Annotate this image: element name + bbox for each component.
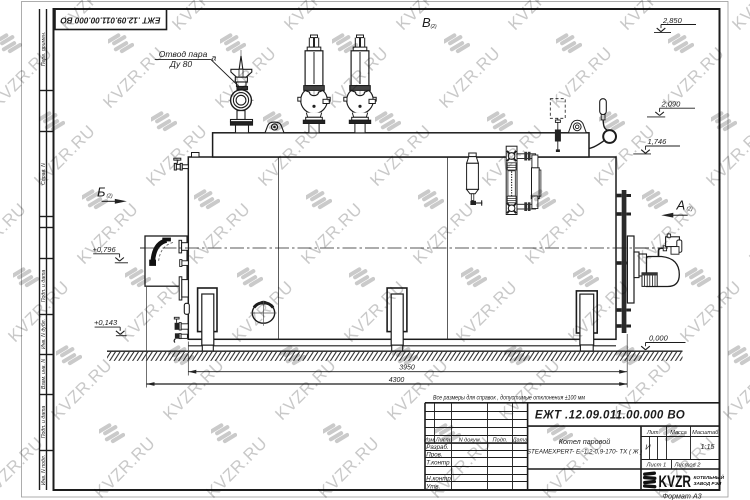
svg-text:И: И — [645, 443, 651, 452]
svg-text:Т.контр: Т.контр — [426, 460, 450, 467]
svg-text:КОТЕЛЬНЫЙ: КОТЕЛЬНЫЙ — [694, 473, 725, 480]
svg-text:(2): (2) — [431, 24, 437, 30]
svg-text:Лит.: Лит. — [646, 430, 660, 436]
svg-text:+0,143: +0,143 — [94, 318, 118, 327]
svg-text:Инв. N дубл.: Инв. N дубл. — [41, 319, 47, 349]
svg-text:Инв. N подл.: Инв. N подл. — [41, 455, 47, 485]
svg-text:Подп.: Подп. — [493, 438, 508, 444]
svg-text:Пров.: Пров. — [426, 452, 442, 459]
svg-text:Изм.: Изм. — [424, 438, 436, 444]
svg-text:Ду 80: Ду 80 — [169, 59, 192, 69]
svg-text:Разраб.: Разраб. — [426, 444, 448, 451]
svg-text:Лист 1: Лист 1 — [646, 463, 667, 469]
svg-text:а: а — [212, 53, 217, 63]
svg-text:Подп. и дата: Подп. и дата — [41, 406, 47, 439]
svg-text:Дата: Дата — [512, 438, 528, 444]
svg-text:ЗАВОД РЭП: ЗАВОД РЭП — [694, 481, 722, 486]
svg-text:Взам. инв. N: Взам. инв. N — [41, 359, 47, 389]
svg-text:0,000: 0,000 — [649, 334, 669, 343]
svg-text:2,850: 2,850 — [662, 16, 683, 25]
svg-text:4300: 4300 — [389, 377, 405, 384]
